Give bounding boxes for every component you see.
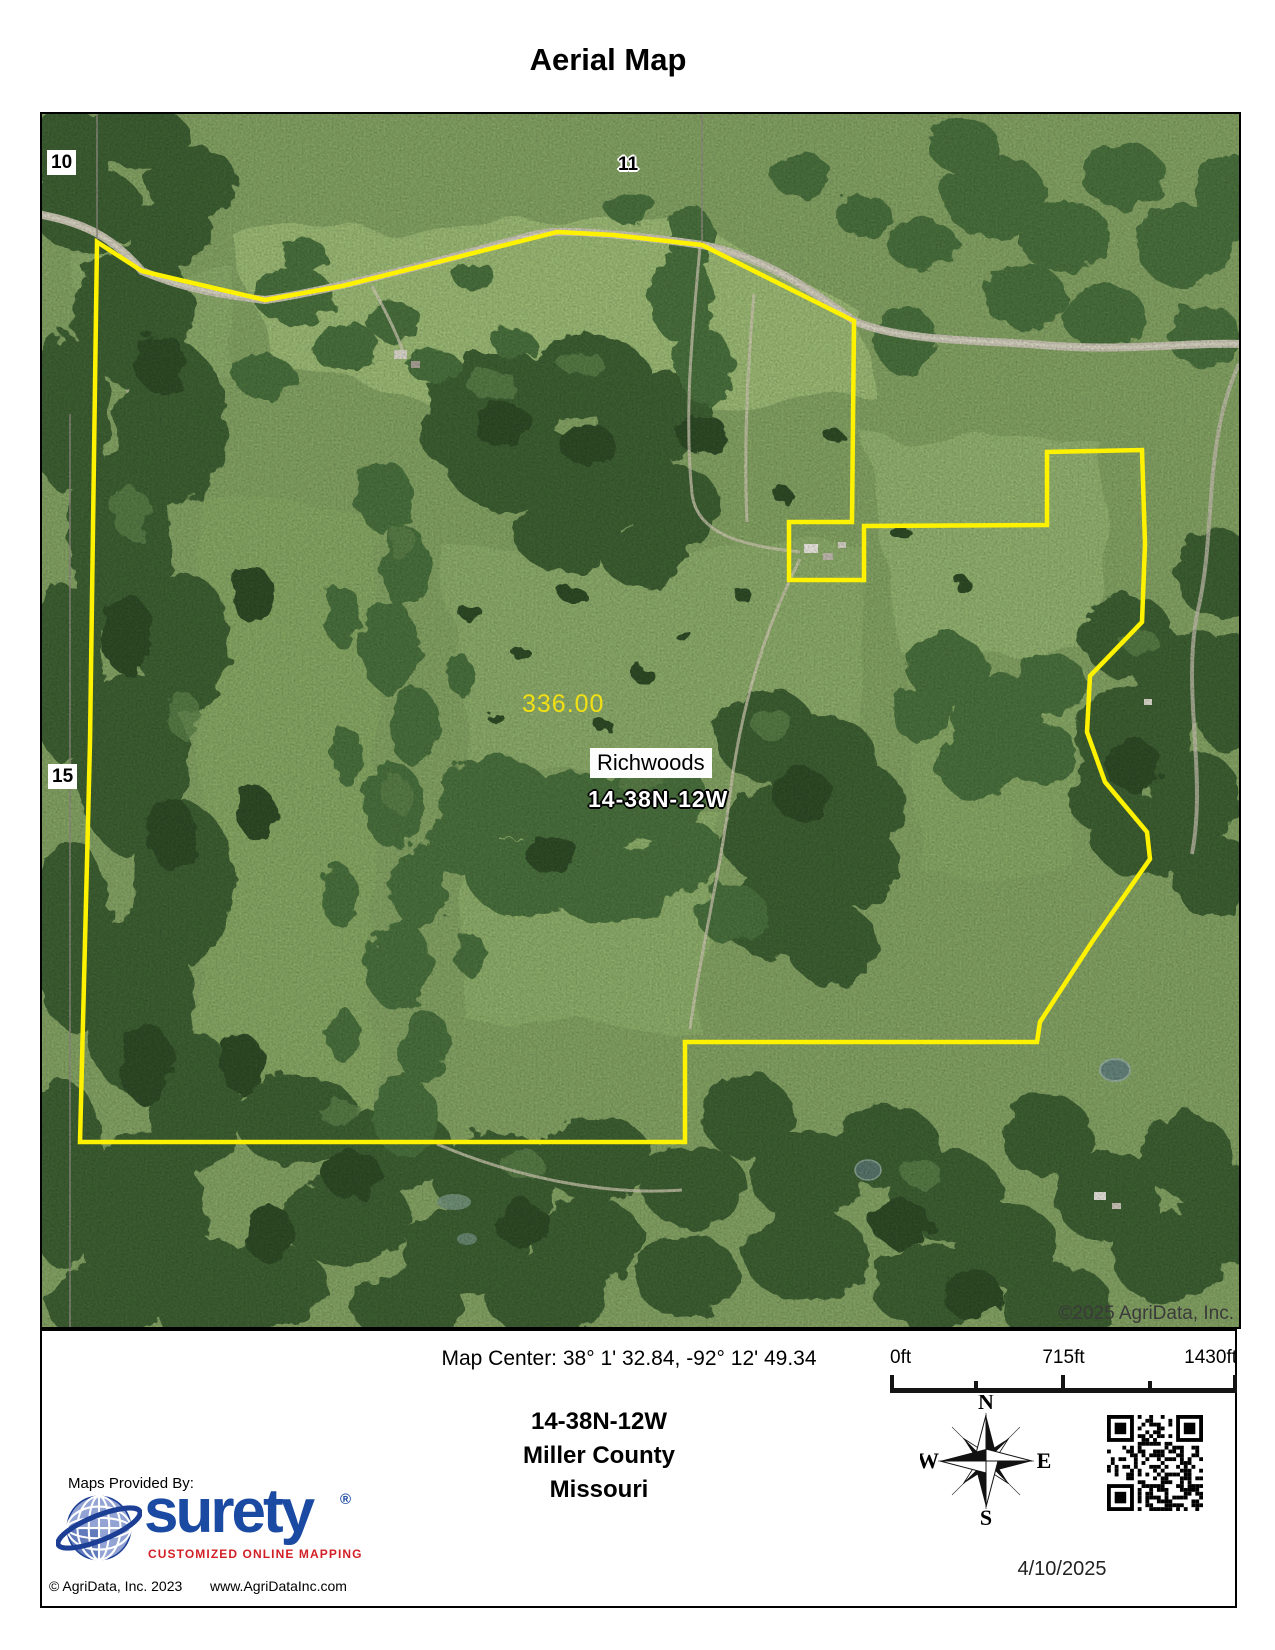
county-label: Miller County [359,1439,839,1473]
township-overlay-label: 14-38N-12W [588,786,728,813]
page-title: Aerial Map [0,42,1216,78]
scale-tick [1148,1381,1152,1393]
agridata-copyright: © AgriData, Inc. 2023 [49,1578,182,1594]
scale-tick [1233,1375,1237,1393]
map-date: 4/10/2025 [962,1558,1162,1581]
scale-tick [974,1381,978,1393]
agridata-website: www.AgriDataInc.com [210,1578,347,1594]
compass-north-label: N [978,1395,994,1414]
section-label-10: 10 [47,150,76,175]
location-block: 14-38N-12W Miller County Missouri [359,1405,839,1507]
surety-globe-logo [56,1483,142,1569]
compass-rose-icon: N E S W [920,1395,1052,1527]
aerial-map: 10 11 15 336.00 Richwoods 14-38N-12W ©20… [40,112,1241,1329]
scale-tick [1061,1375,1065,1393]
acreage-label: 336.00 [522,690,604,719]
aerial-map-page: Aerial Map [0,0,1275,1650]
place-label: Richwoods [590,748,712,778]
compass-west-label: W [920,1448,939,1473]
scale-label-0ft: 0ft [890,1347,911,1369]
qr-code [1107,1415,1203,1511]
compass-east-label: E [1037,1448,1052,1473]
section-label-11: 11 [618,154,638,176]
scale-label-1430ft: 1430ft [1184,1347,1237,1369]
map-copyright-watermark: ©2025 AgriData, Inc. [1058,1303,1234,1325]
footer-panel: Map Center: 38° 1' 32.84, -92° 12' 49.34… [40,1329,1237,1608]
scale-label-715ft: 715ft [1042,1347,1084,1369]
scale-tick [890,1375,894,1393]
aerial-photo [42,114,1239,1327]
township-label: 14-38N-12W [359,1405,839,1439]
compass-south-label: S [980,1505,992,1527]
surety-tagline: CUSTOMIZED ONLINE MAPPING [148,1547,363,1561]
registered-trademark-symbol: ® [340,1491,351,1508]
scale-bar: 0ft 715ft 1430ft [890,1347,1237,1399]
photo-grain [42,114,1239,1327]
state-label: Missouri [359,1473,839,1507]
surety-brand-wordmark: surety [144,1481,312,1543]
section-label-15: 15 [48,764,77,789]
